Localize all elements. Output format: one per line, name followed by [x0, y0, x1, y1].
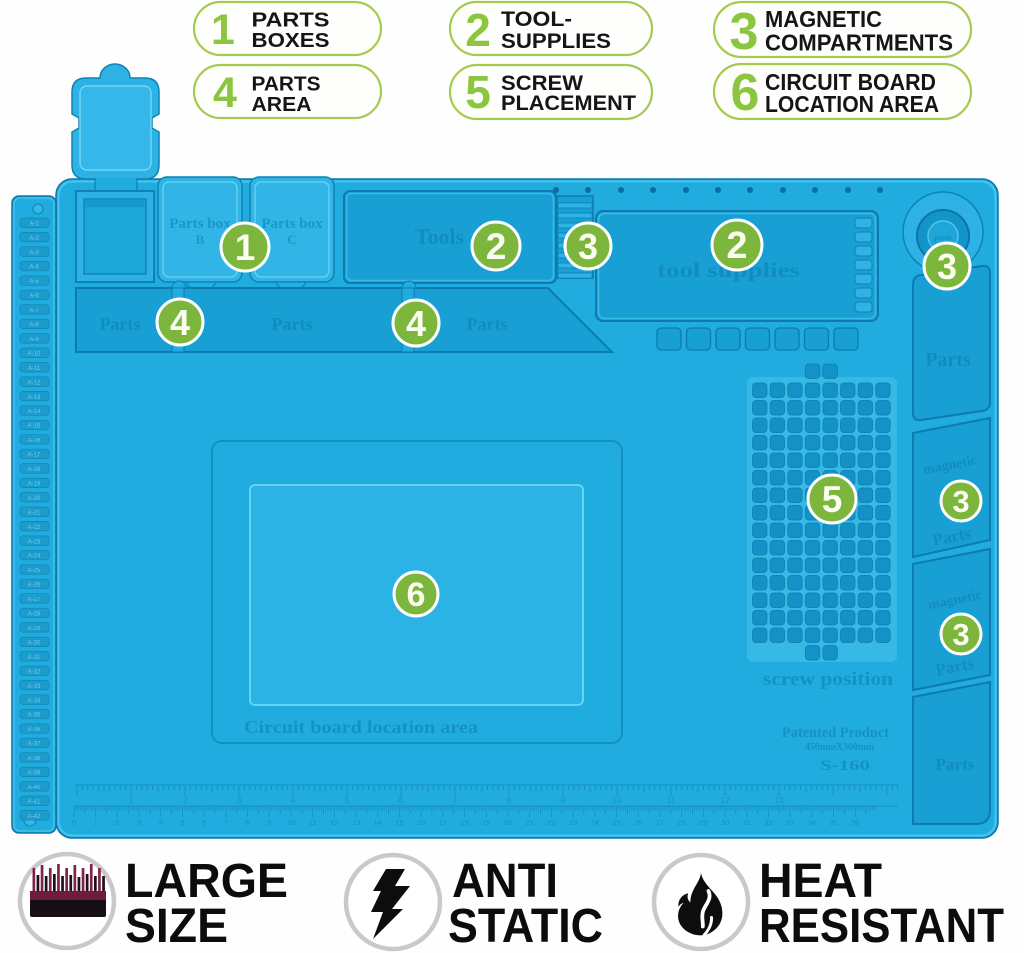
svg-text:A-6: A-6: [29, 294, 39, 300]
svg-text:12: 12: [720, 795, 730, 805]
svg-text:A-21: A-21: [28, 510, 41, 516]
svg-text:AREA: AREA: [252, 94, 312, 116]
svg-text:SUPPLIES: SUPPLIES: [501, 30, 611, 53]
svg-text:A-38: A-38: [28, 756, 41, 762]
svg-text:RESISTANT: RESISTANT: [759, 900, 1004, 953]
svg-text:10: 10: [287, 818, 295, 827]
svg-text:A-37: A-37: [28, 742, 41, 748]
svg-text:Parts: Parts: [936, 755, 975, 774]
svg-text:Parts box: Parts box: [261, 216, 323, 232]
svg-text:A-32: A-32: [28, 669, 41, 675]
svg-text:4: 4: [159, 818, 163, 827]
svg-text:A-40: A-40: [28, 785, 41, 791]
svg-text:A-20: A-20: [28, 496, 41, 502]
svg-text:30: 30: [721, 818, 729, 827]
svg-text:A-23: A-23: [28, 539, 41, 545]
svg-text:Patented Product: Patented Product: [782, 725, 889, 741]
svg-text:6: 6: [407, 576, 426, 614]
svg-text:4: 4: [291, 795, 296, 805]
svg-text:2: 2: [115, 818, 119, 827]
svg-text:A-7: A-7: [29, 308, 39, 314]
svg-text:29: 29: [699, 818, 707, 827]
svg-text:A-22: A-22: [28, 525, 41, 531]
svg-text:A-41: A-41: [28, 799, 41, 805]
svg-text:3: 3: [137, 818, 141, 827]
svg-text:20: 20: [504, 818, 512, 827]
svg-text:3: 3: [952, 484, 969, 519]
svg-text:21: 21: [526, 818, 534, 827]
svg-text:17: 17: [439, 818, 447, 827]
svg-text:11: 11: [309, 818, 317, 827]
svg-text:25: 25: [612, 818, 620, 827]
svg-text:9: 9: [561, 795, 566, 805]
svg-text:C: C: [287, 232, 296, 247]
svg-text:2: 2: [465, 4, 491, 56]
svg-text:3: 3: [578, 226, 598, 267]
svg-text:27: 27: [656, 818, 664, 827]
svg-text:A-9: A-9: [29, 337, 39, 343]
svg-text:TOOL-: TOOL-: [501, 8, 572, 31]
svg-text:1: 1: [129, 795, 134, 805]
svg-text:A-30: A-30: [28, 641, 41, 647]
svg-text:B: B: [196, 232, 205, 247]
svg-text:A-5: A-5: [29, 279, 39, 285]
svg-text:4: 4: [213, 69, 237, 117]
svg-text:0: 0: [72, 818, 76, 827]
svg-text:15: 15: [395, 818, 403, 827]
svg-text:A-18: A-18: [28, 467, 41, 473]
svg-text:A-25: A-25: [28, 568, 41, 574]
svg-text:A-34: A-34: [28, 698, 41, 704]
svg-text:STATIC: STATIC: [448, 900, 603, 953]
svg-text:Parts: Parts: [100, 314, 141, 334]
svg-text:19: 19: [482, 818, 490, 827]
svg-text:PARTS: PARTS: [252, 10, 330, 32]
svg-text:A-1: A-1: [29, 221, 39, 227]
svg-text:A-27: A-27: [28, 597, 41, 603]
svg-text:A-33: A-33: [28, 684, 41, 690]
svg-text:6: 6: [202, 818, 206, 827]
svg-text:Parts: Parts: [467, 314, 508, 334]
svg-text:LOCATION AREA: LOCATION AREA: [765, 91, 939, 117]
svg-text:PLACEMENT: PLACEMENT: [501, 92, 636, 115]
svg-text:450mmX300mm: 450mmX300mm: [805, 742, 874, 753]
svg-text:S-160: S-160: [820, 758, 870, 774]
svg-text:COMPARTMENTS: COMPARTMENTS: [765, 30, 953, 56]
svg-text:5: 5: [465, 66, 491, 118]
svg-text:3: 3: [237, 795, 242, 805]
svg-text:6: 6: [731, 64, 760, 122]
svg-text:5: 5: [822, 479, 843, 520]
svg-text:SIZE: SIZE: [125, 900, 228, 953]
svg-text:A-14: A-14: [28, 409, 41, 415]
svg-text:MAGNETIC: MAGNETIC: [765, 6, 882, 32]
svg-text:35: 35: [829, 818, 837, 827]
svg-text:16: 16: [417, 818, 425, 827]
svg-text:33: 33: [786, 818, 794, 827]
svg-text:10: 10: [612, 795, 622, 805]
svg-text:parts: parts: [934, 233, 952, 242]
svg-text:2: 2: [183, 795, 188, 805]
svg-text:7: 7: [453, 795, 458, 805]
svg-text:A-11: A-11: [28, 366, 41, 372]
svg-text:1: 1: [235, 227, 256, 268]
svg-text:11: 11: [667, 795, 676, 805]
svg-text:A-28: A-28: [28, 612, 41, 618]
svg-text:Parts box: Parts box: [169, 216, 231, 232]
svg-text:4: 4: [170, 302, 190, 343]
svg-text:34: 34: [808, 818, 816, 827]
svg-text:A-35: A-35: [28, 713, 41, 719]
svg-text:24: 24: [591, 818, 599, 827]
svg-text:Parts: Parts: [925, 349, 971, 371]
svg-text:3: 3: [952, 617, 969, 652]
svg-text:A-8: A-8: [29, 323, 39, 329]
svg-text:A-24: A-24: [28, 554, 41, 560]
svg-text:3: 3: [730, 3, 759, 61]
svg-text:A-31: A-31: [28, 655, 41, 661]
svg-text:5: 5: [345, 795, 350, 805]
svg-text:31: 31: [743, 818, 751, 827]
svg-text:36: 36: [851, 818, 859, 827]
svg-text:8: 8: [246, 818, 250, 827]
svg-text:3: 3: [937, 246, 957, 287]
svg-text:Parts: Parts: [272, 314, 313, 334]
svg-text:A-2: A-2: [29, 236, 39, 242]
svg-text:28: 28: [677, 818, 685, 827]
svg-text:A-26: A-26: [28, 583, 41, 589]
svg-text:screw position: screw position: [763, 669, 893, 690]
svg-text:22: 22: [547, 818, 555, 827]
svg-text:PARTS: PARTS: [252, 74, 321, 96]
svg-text:5: 5: [180, 818, 184, 827]
svg-text:7: 7: [224, 818, 228, 827]
svg-text:26: 26: [634, 818, 642, 827]
svg-text:A-19: A-19: [28, 482, 41, 488]
svg-text:2: 2: [726, 225, 747, 267]
svg-text:A-39: A-39: [28, 771, 41, 777]
svg-text:A-29: A-29: [28, 626, 41, 632]
svg-text:A-12: A-12: [28, 380, 41, 386]
svg-text:A-42: A-42: [28, 814, 41, 820]
svg-text:6: 6: [399, 795, 404, 805]
svg-text:12: 12: [330, 818, 338, 827]
svg-text:13: 13: [352, 818, 360, 827]
svg-text:A-3: A-3: [29, 250, 39, 256]
svg-text:A-15: A-15: [28, 424, 41, 430]
svg-text:13: 13: [774, 795, 784, 805]
svg-text:8: 8: [507, 795, 512, 805]
svg-text:23: 23: [569, 818, 577, 827]
svg-text:14: 14: [374, 818, 382, 827]
svg-text:Circuit board location area: Circuit board location area: [244, 717, 478, 737]
svg-text:2: 2: [486, 226, 507, 267]
svg-text:A-36: A-36: [28, 727, 41, 733]
svg-text:32: 32: [764, 818, 772, 827]
svg-text:4: 4: [406, 303, 426, 344]
svg-text:Tools: Tools: [415, 224, 464, 249]
svg-text:9: 9: [267, 818, 271, 827]
svg-text:A-13: A-13: [28, 395, 41, 401]
svg-text:A-4: A-4: [29, 265, 39, 271]
svg-text:A-17: A-17: [28, 453, 41, 459]
svg-text:BOXES: BOXES: [252, 30, 330, 52]
svg-text:18: 18: [460, 818, 468, 827]
svg-text:A-10: A-10: [28, 351, 41, 357]
svg-text:1: 1: [94, 818, 98, 827]
svg-text:1: 1: [211, 6, 235, 54]
svg-text:A-16: A-16: [28, 438, 41, 444]
